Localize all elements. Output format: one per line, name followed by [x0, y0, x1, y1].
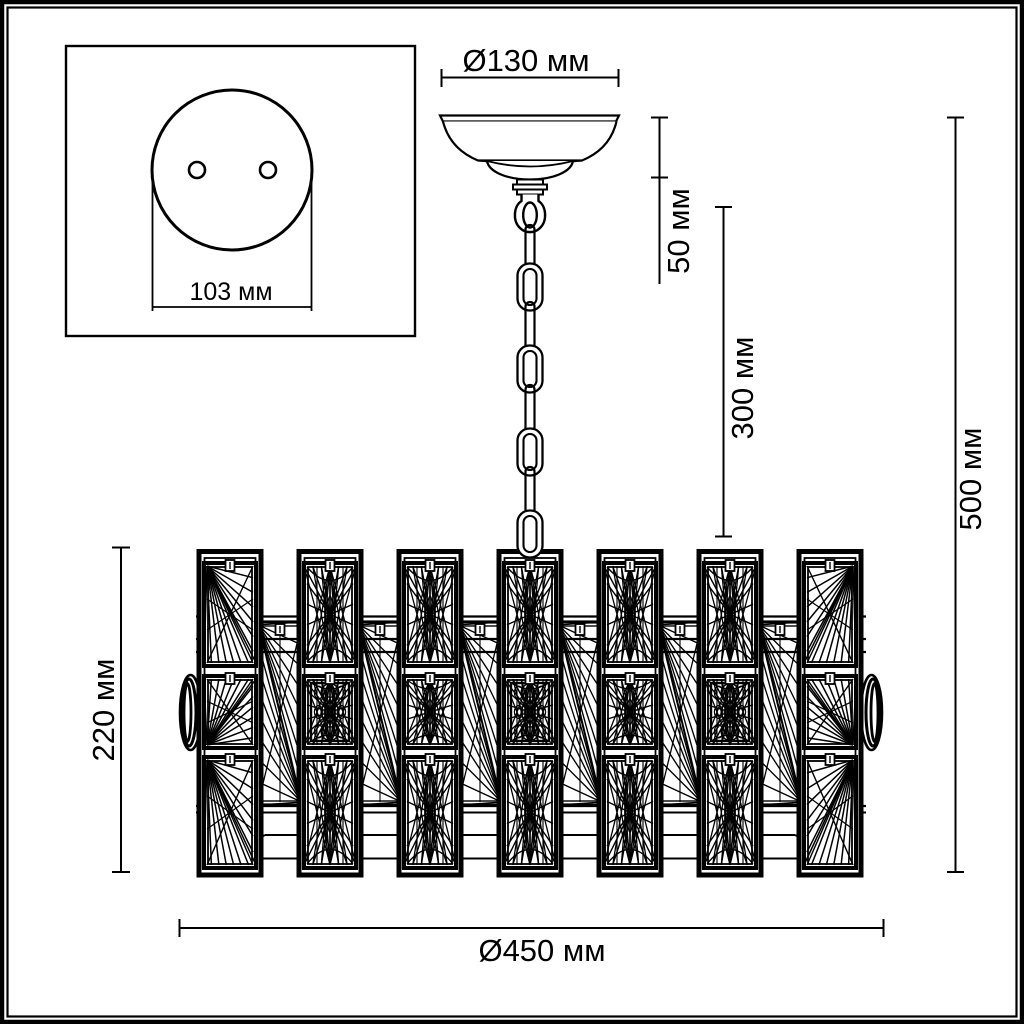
svg-text:220 мм: 220 мм: [86, 659, 121, 762]
svg-text:103 мм: 103 мм: [189, 278, 272, 306]
svg-text:500 мм: 500 мм: [953, 428, 988, 531]
svg-text:300 мм: 300 мм: [725, 337, 760, 440]
svg-text:50 мм: 50 мм: [661, 188, 696, 274]
svg-text:Ø130 мм: Ø130 мм: [462, 43, 589, 78]
svg-text:Ø450 мм: Ø450 мм: [478, 933, 605, 968]
